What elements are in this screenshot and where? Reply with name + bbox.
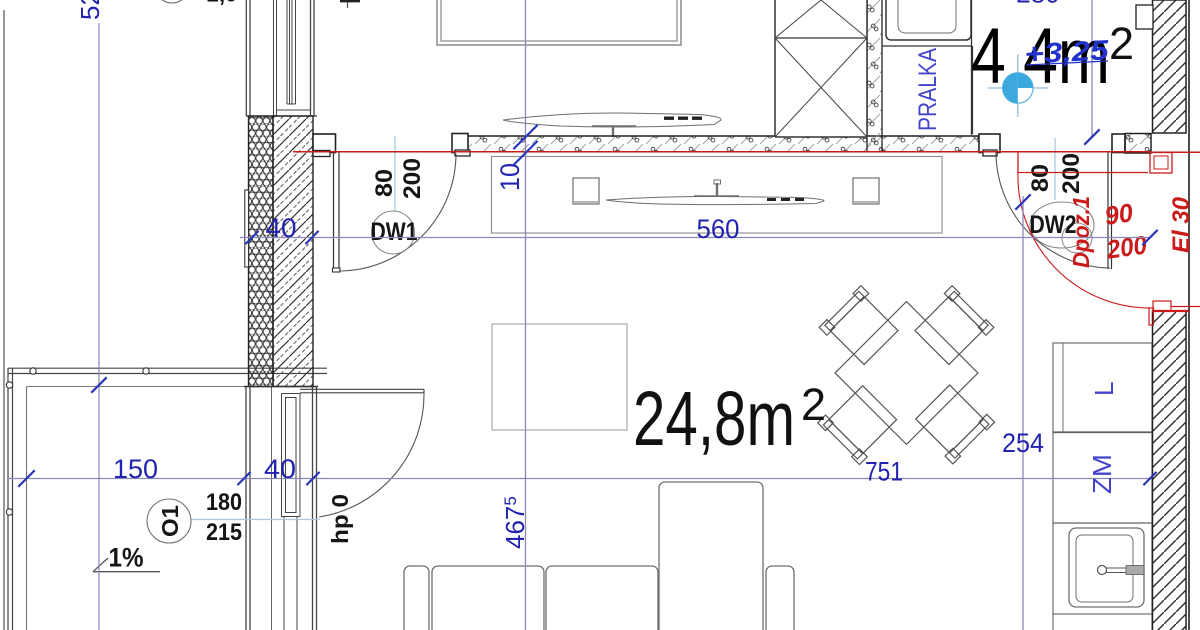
svg-text:254: 254 bbox=[1002, 428, 1044, 458]
svg-text:L: L bbox=[1089, 382, 1119, 396]
svg-text:ZM: ZM bbox=[1087, 454, 1117, 494]
svg-text:751: 751 bbox=[865, 457, 903, 487]
svg-text:2,0: 2,0 bbox=[207, 0, 238, 7]
svg-text:80: 80 bbox=[371, 169, 398, 197]
svg-text:80: 80 bbox=[1027, 164, 1054, 192]
svg-text:52: 52 bbox=[75, 0, 105, 20]
svg-text:200: 200 bbox=[1104, 229, 1149, 264]
svg-text:215: 215 bbox=[206, 519, 242, 546]
svg-text:200: 200 bbox=[399, 158, 426, 199]
svg-text:O1: O1 bbox=[157, 505, 183, 537]
svg-text:Dpoz.1: Dpoz.1 bbox=[1068, 196, 1094, 268]
svg-text:PRALKA: PRALKA bbox=[914, 48, 942, 131]
svg-text:24,8m: 24,8m bbox=[633, 376, 795, 462]
svg-text:2: 2 bbox=[1109, 18, 1134, 69]
svg-text:40: 40 bbox=[264, 454, 296, 484]
svg-text:10: 10 bbox=[495, 163, 525, 191]
svg-text:2: 2 bbox=[801, 379, 826, 430]
svg-text:180: 180 bbox=[206, 489, 242, 516]
svg-text:1%: 1% bbox=[109, 543, 144, 573]
svg-text:40: 40 bbox=[266, 213, 297, 243]
svg-text:200: 200 bbox=[1058, 153, 1085, 194]
svg-text:150: 150 bbox=[113, 454, 158, 484]
svg-text:560: 560 bbox=[697, 214, 740, 244]
svg-text:hp 0: hp 0 bbox=[327, 494, 353, 544]
svg-text:90: 90 bbox=[1103, 197, 1135, 231]
svg-text:DW1: DW1 bbox=[371, 218, 418, 246]
svg-text:El 30: El 30 bbox=[1168, 196, 1195, 253]
svg-text:280: 280 bbox=[1016, 0, 1059, 9]
